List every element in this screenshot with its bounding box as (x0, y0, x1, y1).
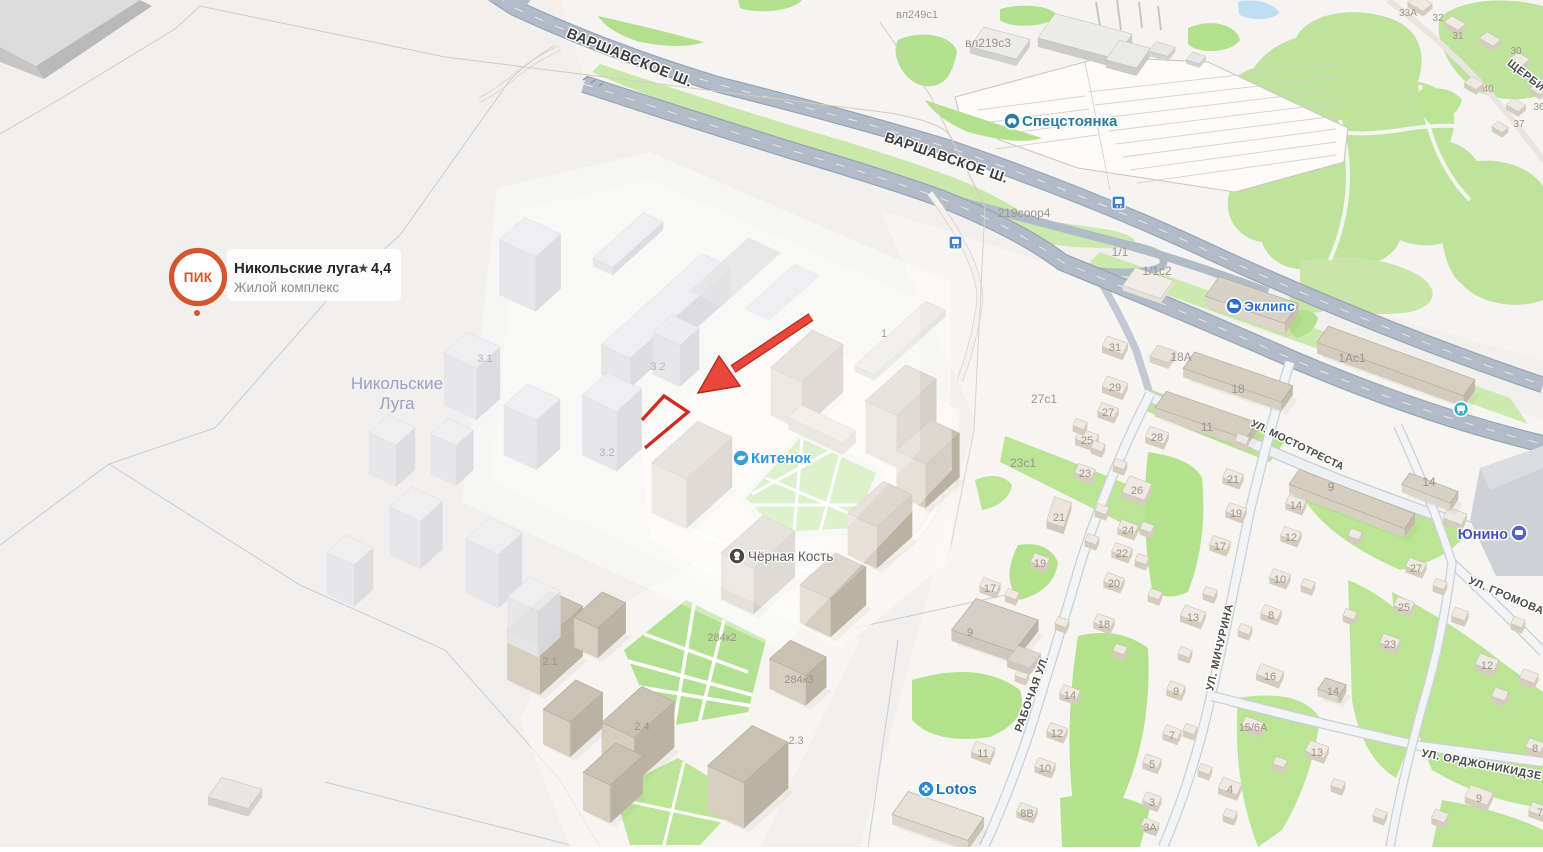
svg-text:27: 27 (1102, 407, 1114, 419)
svg-text:31: 31 (1452, 31, 1464, 42)
svg-text:2.3: 2.3 (788, 735, 803, 747)
svg-text:3.1: 3.1 (477, 353, 492, 365)
svg-text:14: 14 (1064, 690, 1076, 702)
svg-text:9: 9 (1476, 793, 1482, 805)
svg-text:32: 32 (1432, 13, 1444, 24)
svg-text:25: 25 (1398, 602, 1410, 614)
svg-text:14: 14 (1327, 686, 1339, 698)
svg-text:1/1: 1/1 (1112, 245, 1129, 259)
svg-text:17: 17 (1214, 541, 1226, 553)
svg-text:22: 22 (1116, 548, 1128, 560)
svg-text:21: 21 (1053, 512, 1065, 524)
svg-text:9: 9 (1173, 686, 1179, 698)
svg-text:37: 37 (1513, 119, 1525, 130)
svg-text:1: 1 (881, 328, 887, 340)
svg-text:Никольские луга: Никольские луга (234, 260, 359, 277)
svg-text:10: 10 (1039, 763, 1051, 775)
svg-text:вл249с1: вл249с1 (896, 9, 938, 21)
svg-text:12: 12 (1051, 728, 1063, 740)
svg-text:Спецстоянка: Спецстоянка (1022, 113, 1118, 130)
svg-text:23с1: 23с1 (1010, 456, 1036, 470)
svg-text:24: 24 (1122, 525, 1134, 537)
svg-text:4: 4 (1227, 784, 1233, 796)
svg-text:17: 17 (984, 583, 996, 595)
svg-text:9: 9 (967, 627, 973, 639)
svg-text:26: 26 (1131, 485, 1143, 497)
svg-text:20: 20 (1108, 578, 1120, 590)
svg-text:4,4: 4,4 (371, 261, 391, 277)
svg-text:25: 25 (1081, 435, 1093, 447)
svg-text:284к2: 284к2 (707, 632, 736, 644)
svg-text:вл219с3: вл219с3 (965, 36, 1011, 50)
svg-text:3: 3 (1149, 797, 1155, 809)
svg-text:33А: 33А (1399, 8, 1417, 19)
svg-text:13: 13 (1311, 747, 1323, 759)
svg-text:23: 23 (1079, 468, 1091, 480)
svg-text:8В: 8В (1020, 808, 1033, 820)
svg-text:30: 30 (1510, 46, 1522, 57)
svg-text:Lotos: Lotos (936, 781, 977, 798)
svg-text:10: 10 (1274, 574, 1286, 586)
svg-text:13: 13 (1187, 612, 1199, 624)
svg-text:23: 23 (1384, 639, 1396, 651)
svg-text:14: 14 (1422, 475, 1436, 489)
svg-text:27: 27 (1410, 563, 1422, 575)
svg-text:31: 31 (1109, 342, 1121, 354)
svg-text:219соор4: 219соор4 (998, 206, 1051, 220)
svg-text:3.2: 3.2 (599, 447, 614, 459)
svg-text:12: 12 (1481, 660, 1493, 672)
svg-text:18А: 18А (1170, 350, 1191, 364)
svg-text:2.1: 2.1 (542, 656, 557, 668)
svg-text:16: 16 (1264, 671, 1276, 683)
svg-text:Эклипс: Эклипс (1244, 298, 1295, 314)
svg-text:18: 18 (1098, 619, 1110, 631)
svg-text:7: 7 (1169, 730, 1175, 742)
svg-text:11: 11 (1201, 420, 1214, 434)
svg-text:14: 14 (1290, 500, 1302, 512)
svg-text:21: 21 (1227, 474, 1239, 486)
svg-text:15/6А: 15/6А (1239, 722, 1268, 734)
svg-text:★: ★ (358, 261, 370, 276)
svg-text:3А: 3А (1143, 822, 1157, 834)
svg-text:8: 8 (1268, 610, 1274, 622)
svg-text:40: 40 (1482, 84, 1494, 95)
svg-text:11: 11 (977, 748, 988, 760)
svg-text:284к3: 284к3 (784, 674, 813, 686)
svg-text:ПИК: ПИК (184, 270, 213, 285)
svg-text:Чёрная Кость: Чёрная Кость (748, 549, 833, 564)
svg-text:Никольские: Никольские (351, 374, 443, 393)
svg-text:1/1с2: 1/1с2 (1142, 264, 1172, 278)
svg-text:8: 8 (1532, 743, 1538, 755)
svg-text:Жилой комплекс: Жилой комплекс (234, 280, 339, 295)
svg-text:29: 29 (1109, 382, 1121, 394)
svg-text:Луга: Луга (379, 394, 415, 413)
svg-text:19: 19 (1034, 558, 1046, 570)
svg-text:3.2: 3.2 (650, 361, 665, 373)
svg-text:12: 12 (1285, 532, 1297, 544)
svg-text:1Ас1: 1Ас1 (1338, 351, 1366, 365)
svg-text:5: 5 (1149, 759, 1155, 771)
svg-text:9: 9 (1328, 480, 1335, 494)
svg-text:27с1: 27с1 (1031, 392, 1057, 406)
svg-text:28: 28 (1151, 432, 1163, 444)
svg-text:18: 18 (1231, 382, 1245, 396)
svg-text:2.4: 2.4 (634, 721, 649, 733)
svg-text:Юнино: Юнино (1458, 527, 1508, 543)
svg-text:Китенок: Китенок (751, 450, 811, 467)
svg-text:7: 7 (1537, 807, 1543, 819)
svg-text:19: 19 (1230, 508, 1242, 520)
svg-text:36: 36 (1533, 102, 1543, 113)
